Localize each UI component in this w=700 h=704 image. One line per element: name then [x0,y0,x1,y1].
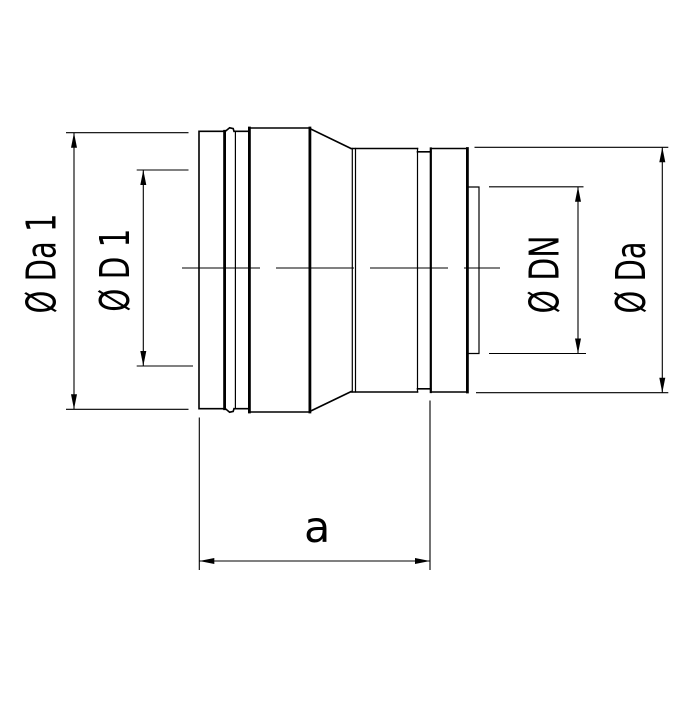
outline-thin-lines [235,131,479,408]
d1-arrow-up-icon [140,170,146,185]
label-dn: Ø DN [521,236,569,314]
da1-arrow-down-icon [71,394,77,409]
da-arrow-up-icon [659,147,665,162]
outline-edges [199,128,467,412]
label-a: a [304,503,330,553]
da1-arrow-up-icon [71,133,77,148]
dn-arrow-down-icon [575,339,581,354]
drawing-canvas: Ø Da 1 Ø D 1 Ø DN Ø Da [0,0,700,700]
reducer-technical-drawing: Ø Da 1 Ø D 1 Ø DN Ø Da [0,0,700,700]
a-arrow-right-icon [415,558,430,564]
da-arrow-down-icon [659,378,665,393]
label-da1: Ø Da 1 [18,214,66,314]
label-da: Ø Da [607,242,655,314]
a-arrow-left-icon [199,558,214,564]
fitting-outline [199,128,479,412]
d1-arrow-down-icon [140,351,146,366]
dn-arrow-up-icon [575,187,581,202]
label-d1: Ø D 1 [91,229,139,312]
